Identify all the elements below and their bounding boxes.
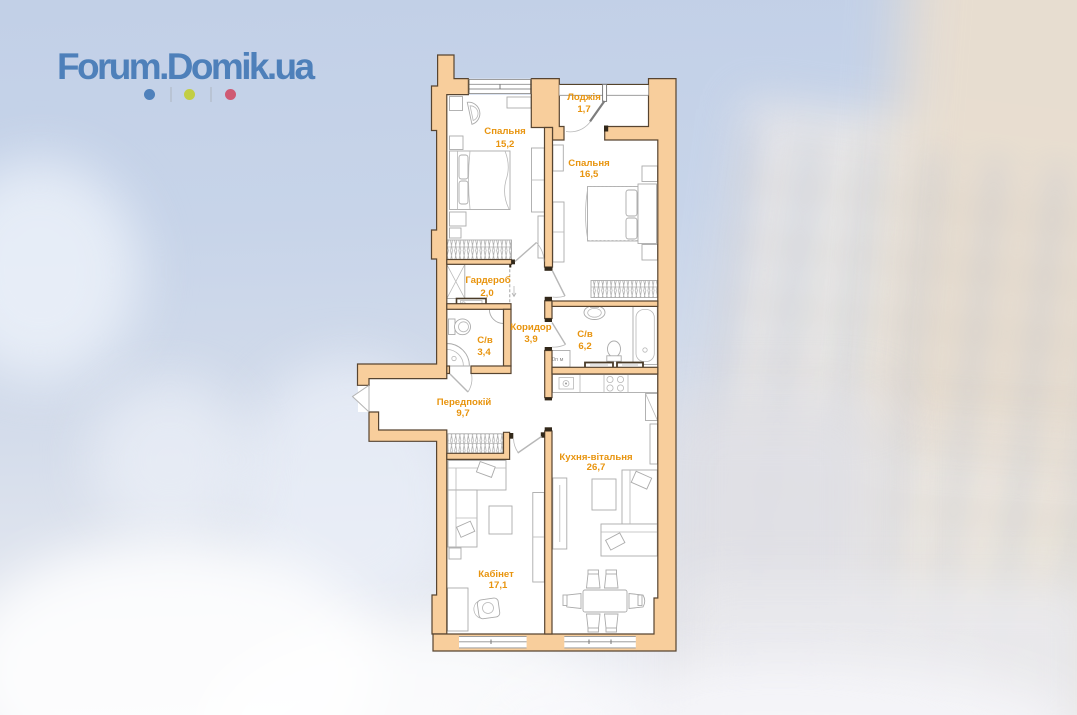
svg-text:Гардероб: Гардероб (465, 275, 510, 286)
svg-text:Спальня: Спальня (568, 158, 609, 169)
svg-text:Кабінет: Кабінет (478, 569, 514, 580)
svg-text:Передпокій: Передпокій (437, 397, 492, 408)
svg-text:0п м: 0п м (552, 357, 564, 363)
svg-text:15,2: 15,2 (496, 139, 515, 150)
svg-text:Лоджія: Лоджія (567, 92, 601, 103)
svg-text:3,4: 3,4 (477, 347, 491, 358)
svg-text:1,7: 1,7 (577, 104, 590, 115)
svg-text:3,9: 3,9 (524, 334, 537, 345)
svg-text:6,2: 6,2 (578, 341, 591, 352)
svg-text:9,7: 9,7 (456, 408, 469, 419)
svg-text:Коридор: Коридор (510, 322, 551, 333)
svg-text:16,5: 16,5 (580, 169, 599, 180)
svg-text:С/в: С/в (477, 335, 493, 346)
svg-text:Спальня: Спальня (484, 126, 525, 137)
svg-text:2,0: 2,0 (480, 288, 493, 299)
svg-text:26,7: 26,7 (587, 462, 606, 473)
svg-text:17,1: 17,1 (489, 580, 508, 591)
svg-text:С/в: С/в (577, 329, 593, 340)
